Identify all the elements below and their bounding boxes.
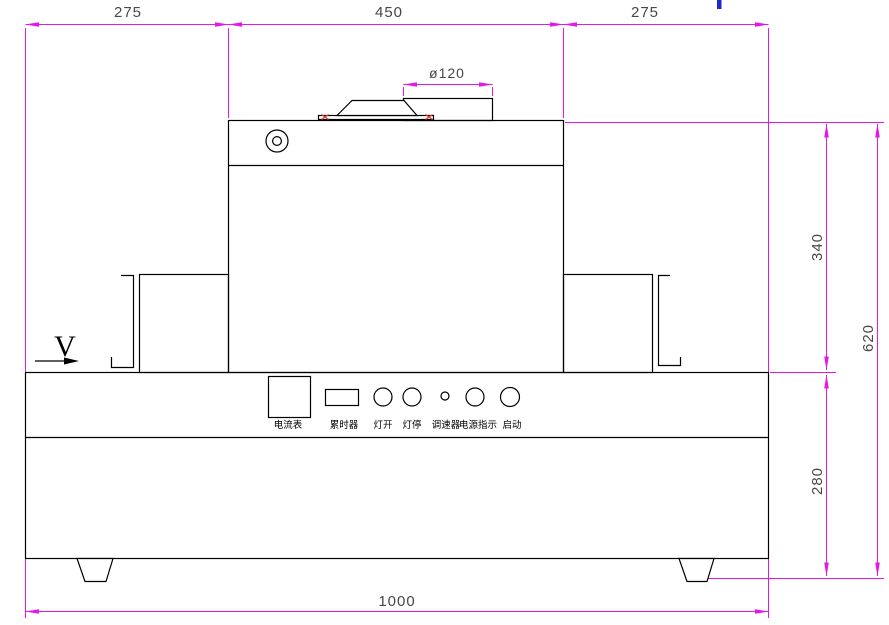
dim-value-overall-height: 620 — [860, 324, 877, 352]
lamp-on-button — [374, 388, 392, 406]
start-button-label: 启动 — [502, 419, 521, 431]
housing-knob-inner — [273, 137, 282, 146]
start-button — [501, 388, 520, 407]
speed-knob — [441, 392, 449, 400]
dim-value-lamp-housing-height: 340 — [809, 233, 826, 261]
blue-cursor-mark — [717, 0, 722, 9]
speed-knob-label: 调速器 — [432, 420, 461, 431]
timer-label: 累时器 — [330, 419, 359, 431]
lamp-off-label: 灯停 — [402, 419, 422, 431]
dim-value-base-height: 280 — [809, 467, 826, 495]
lamp-housing-body — [229, 121, 564, 373]
drawing-canvas: 275 450 275 ø120 340 620 280 1000 — [0, 0, 889, 625]
lamp-on-label: 灯开 — [373, 420, 393, 431]
dim-value-overall-width: 1000 — [378, 593, 415, 610]
direction-label: V — [54, 330, 76, 363]
left-foot — [77, 559, 113, 582]
lamp-cap — [337, 101, 417, 116]
ammeter-box — [269, 377, 311, 418]
lamp-off-button — [403, 388, 421, 406]
timer-box — [326, 390, 359, 406]
right-tunnel-shield — [564, 275, 653, 373]
machine-base — [26, 373, 769, 559]
machine-outline — [26, 99, 769, 582]
power-indicator-label: 电源指示 — [459, 419, 497, 431]
power-indicator-lamp — [466, 388, 484, 406]
control-panel-labels: 电流表 累时器 灯开 灯停 调速器 电源指示 启动 — [274, 419, 522, 431]
left-tunnel-shield — [140, 275, 229, 373]
dim-value-duct-diameter: ø120 — [429, 65, 465, 81]
left-guard-bracket — [112, 276, 134, 368]
right-guard-bracket — [659, 276, 681, 366]
dim-value-top-center: 450 — [375, 4, 403, 21]
housing-knob-outer — [266, 130, 288, 152]
dim-value-top-right: 275 — [631, 4, 659, 21]
engineering-drawing: 275 450 275 ø120 340 620 280 1000 — [0, 0, 889, 625]
dim-value-top-left: 275 — [114, 4, 142, 21]
ammeter-label: 电流表 — [274, 419, 303, 431]
